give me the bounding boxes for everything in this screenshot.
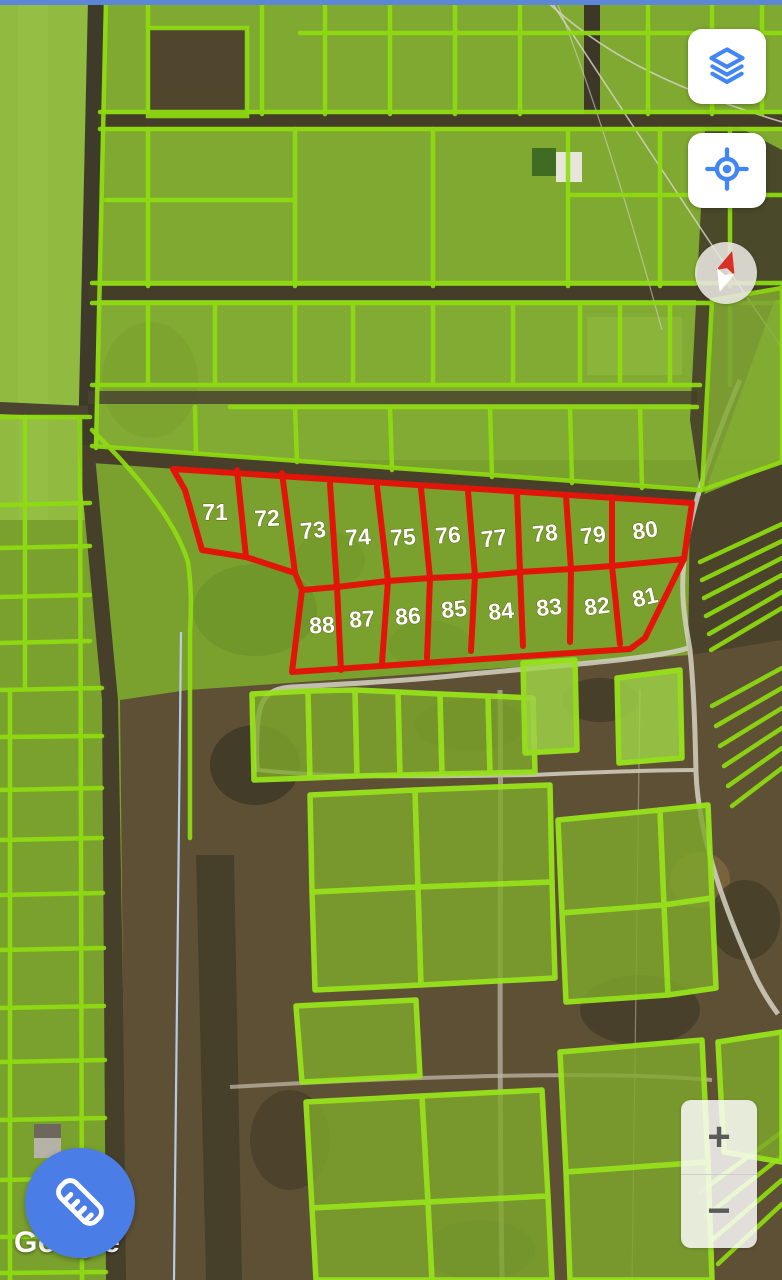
ruler-icon [50,1172,110,1235]
parcel-label-88: 88 [309,611,336,638]
parcel-label-84: 84 [487,597,515,625]
parcel-label-83: 83 [535,593,563,622]
parcel-label-73: 73 [299,516,327,545]
parcel-label-82: 82 [583,592,612,621]
layers-icon [705,43,749,90]
status-strip [0,0,782,5]
layers-button[interactable] [688,29,766,104]
parcel-label-76: 76 [434,521,461,549]
zoom-out-button[interactable]: − [681,1174,757,1249]
parcel-label-87: 87 [348,605,375,633]
my-location-button[interactable] [688,133,766,208]
parcel-label-71: 71 [202,499,228,525]
map-view: 717273747576777879808182838485868788 [0,0,782,1280]
parcel-label-77: 77 [480,524,509,553]
parcel-label-86: 86 [394,602,421,630]
parcel-label-78: 78 [531,519,559,547]
parcel-label-79: 79 [579,521,608,550]
parcel-label-74: 74 [344,523,372,551]
measure-fab[interactable] [25,1148,135,1258]
compass-button[interactable] [695,242,757,304]
parcel-label-80: 80 [631,515,660,544]
parcel-label-75: 75 [389,523,417,551]
parcel-label-72: 72 [254,505,280,532]
my-location-icon [704,146,750,195]
map-backdrop[interactable]: 717273747576777879808182838485868788 [0,0,782,1280]
zoom-in-button[interactable]: + [681,1100,757,1174]
zoom-controls: + − [681,1100,757,1248]
compass-needle-icon [699,244,753,303]
parcel-label-85: 85 [440,595,468,624]
